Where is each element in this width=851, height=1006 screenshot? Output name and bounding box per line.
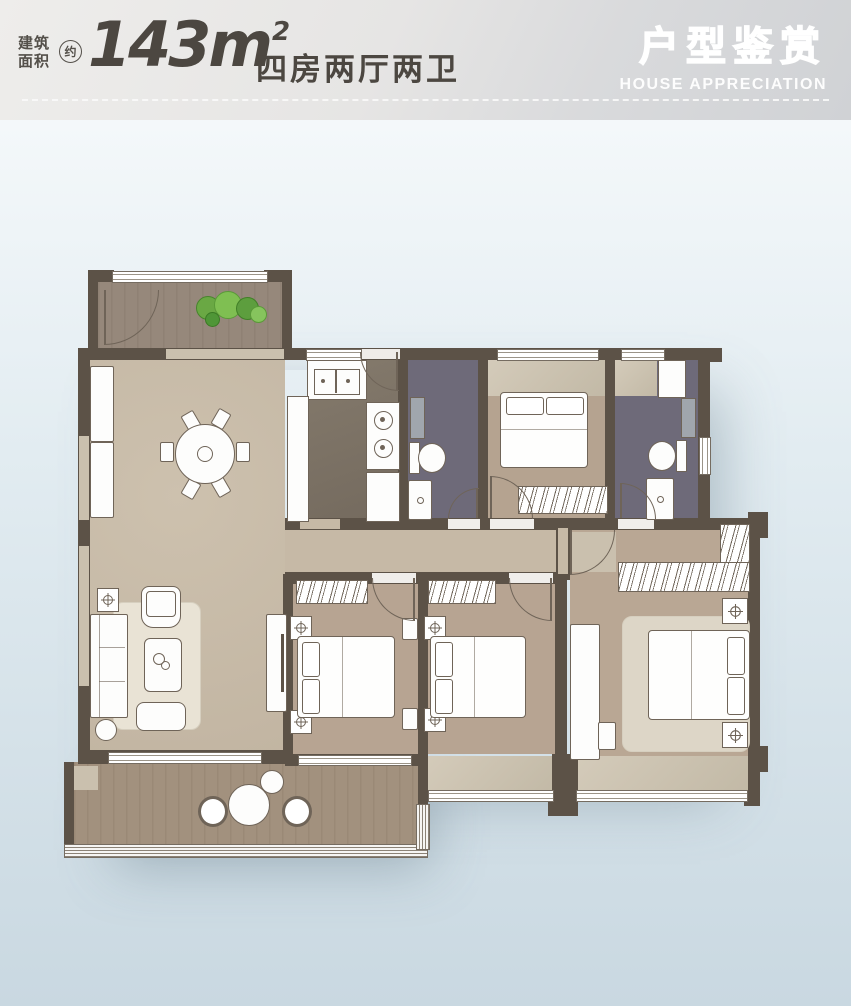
pillow	[302, 642, 320, 677]
master-bay-window	[576, 790, 748, 802]
pillow	[435, 642, 453, 677]
coffee-table	[144, 638, 182, 692]
duvet-fold	[474, 637, 475, 717]
master-desk	[570, 624, 600, 760]
pillow	[506, 397, 544, 415]
wall-bump-top-right	[698, 348, 722, 362]
living-balcony-window	[108, 752, 262, 764]
bathroom2-bay-sill	[615, 360, 657, 396]
bath1-shower-panel	[410, 397, 425, 439]
entry-balcony-door-leaf	[104, 290, 106, 344]
crosshair-fixture-icon	[722, 598, 748, 624]
master-stool	[598, 722, 616, 750]
plant-icon	[205, 312, 220, 327]
bedroom-top-bay-sill	[488, 360, 605, 396]
area-number: 143m	[88, 8, 270, 81]
area-label-line2: 面积	[18, 53, 50, 71]
bedroom2-side-stand	[402, 618, 418, 640]
bedroom2-window	[298, 755, 412, 766]
pillow	[435, 679, 453, 714]
master-closet-vertical	[720, 524, 750, 566]
kitchen-counter-left	[287, 396, 309, 522]
bedroom-top-door-gap	[490, 519, 534, 529]
bedroom2-side-stand	[402, 708, 418, 730]
kitchen-counter-lower	[366, 472, 400, 522]
ac-bump-bottom	[548, 802, 578, 816]
stove-burner-center	[380, 417, 385, 422]
bath1-toilet-bowl	[418, 443, 446, 473]
bedroom3-bay-sill	[426, 756, 554, 792]
bathroom2-side-window	[699, 437, 711, 475]
plant-icon	[250, 306, 267, 323]
sofa-back-line	[99, 615, 100, 717]
sofa-cushion-line	[99, 647, 125, 648]
living-top-sill	[166, 349, 284, 359]
wall-entry-balcony-left	[88, 272, 98, 360]
dining-table-center	[197, 446, 213, 462]
pier-right-lower	[748, 746, 768, 772]
bath2-cabinet	[658, 360, 686, 398]
pillow	[546, 397, 584, 415]
pier-mid-bottom	[552, 754, 578, 804]
entry-door-leaf	[396, 352, 398, 390]
master-closet-horizontal	[618, 562, 750, 592]
bath2-toilet-bowl	[648, 441, 676, 471]
rooms-summary: 四房两厅两卫	[256, 44, 460, 89]
wall-balcony-right	[418, 762, 428, 806]
tv-screen	[281, 634, 284, 692]
header-dashed-divider	[22, 99, 829, 101]
area-label-line1: 建筑	[18, 35, 50, 53]
bedroom2-door-leaf	[413, 578, 415, 620]
balcony-chair	[198, 796, 228, 827]
balcony-ac-pad	[72, 766, 98, 790]
corridor-floor	[285, 528, 558, 574]
entry-balcony-window	[112, 271, 268, 283]
area-label: 建筑 面积	[18, 35, 50, 71]
wall-balcony-left	[64, 762, 74, 850]
stove-burner-center	[380, 445, 385, 450]
duvet-fold	[691, 631, 692, 719]
bath1-door-leaf	[476, 488, 478, 518]
armchair-cushion	[146, 591, 176, 617]
bedroom2-bed	[297, 636, 395, 718]
master-door-gap	[558, 528, 568, 574]
master-bed	[648, 630, 750, 720]
master-door-leaf	[570, 530, 572, 574]
bath2-sink-drain	[657, 496, 664, 503]
brand-title-cn: 户型鉴赏	[620, 14, 827, 72]
bedroom3-wardrobe	[428, 580, 496, 604]
master-bay-sill	[574, 756, 750, 792]
wall-bath1-bedroom	[478, 348, 488, 530]
sideboard-upper	[90, 366, 114, 442]
crosshair-fixture-icon	[722, 722, 748, 748]
bedroom3-door-leaf	[550, 578, 552, 620]
balcony-railing	[64, 844, 428, 858]
bath2-door-gap	[618, 519, 654, 529]
bedroom-top-window	[497, 349, 599, 361]
dining-chair	[160, 442, 174, 462]
kitchen-sink-divider	[335, 369, 337, 393]
bath1-sink-cabinet	[408, 480, 432, 520]
kitchen-stove-counter	[366, 402, 400, 470]
bedroom-top-door-leaf	[490, 476, 492, 518]
bath1-door-gap	[448, 519, 480, 529]
approx-badge: 约	[59, 40, 82, 63]
pillow	[302, 679, 320, 714]
living-bench	[136, 702, 186, 731]
brand-block: 户型鉴赏 HOUSE APPRECIATION	[620, 14, 827, 94]
crosshair-fixture-icon	[97, 588, 119, 612]
duvet-fold	[342, 637, 343, 717]
pillow	[727, 637, 745, 675]
bedroom2-wardrobe	[296, 580, 368, 604]
armchair	[141, 586, 181, 628]
sink-drain	[346, 379, 350, 383]
duvet-fold	[501, 429, 587, 430]
brand-title-en: HOUSE APPRECIATION	[620, 76, 827, 94]
wall-bedroom2-bedroom3	[418, 572, 428, 764]
pillow	[727, 677, 745, 715]
wall-bedroom3-master	[555, 572, 567, 764]
bedroom3-bed	[430, 636, 526, 718]
coffee-table-item	[161, 661, 170, 670]
page: { "header": { "area_label": ["建筑", "面积"]…	[0, 0, 851, 1006]
bedroom-top-bed	[500, 392, 588, 468]
header-bar: 建筑 面积 约 143m2 四房两厅两卫 户型鉴赏 HOUSE APPRECIA…	[0, 0, 851, 120]
sofa	[90, 614, 128, 718]
balcony-chair	[282, 796, 312, 827]
sink-drain	[321, 379, 325, 383]
pier-right-upper	[748, 512, 768, 538]
bath1-sink-drain	[417, 497, 424, 504]
bath2-door-leaf	[620, 483, 622, 518]
sofa-cushion-line	[99, 681, 125, 682]
balcony-side-table	[260, 770, 284, 794]
floor-lamp	[95, 719, 117, 741]
area-exponent: 2	[272, 17, 290, 47]
balcony-railing-right	[416, 804, 430, 850]
wall-entry-balcony-top-left	[88, 270, 114, 282]
bath2-mirror-panel	[681, 398, 696, 438]
sideboard-lower	[90, 442, 114, 518]
dining-chair	[236, 442, 250, 462]
bath2-toilet-tank	[676, 440, 687, 472]
left-wall-sill-2	[79, 546, 89, 686]
left-wall-sill-1	[79, 436, 89, 520]
bedroom3-bay-window	[428, 790, 554, 802]
kitchen-sink-counter	[307, 360, 367, 400]
wall-entry-balcony-right	[282, 272, 292, 360]
